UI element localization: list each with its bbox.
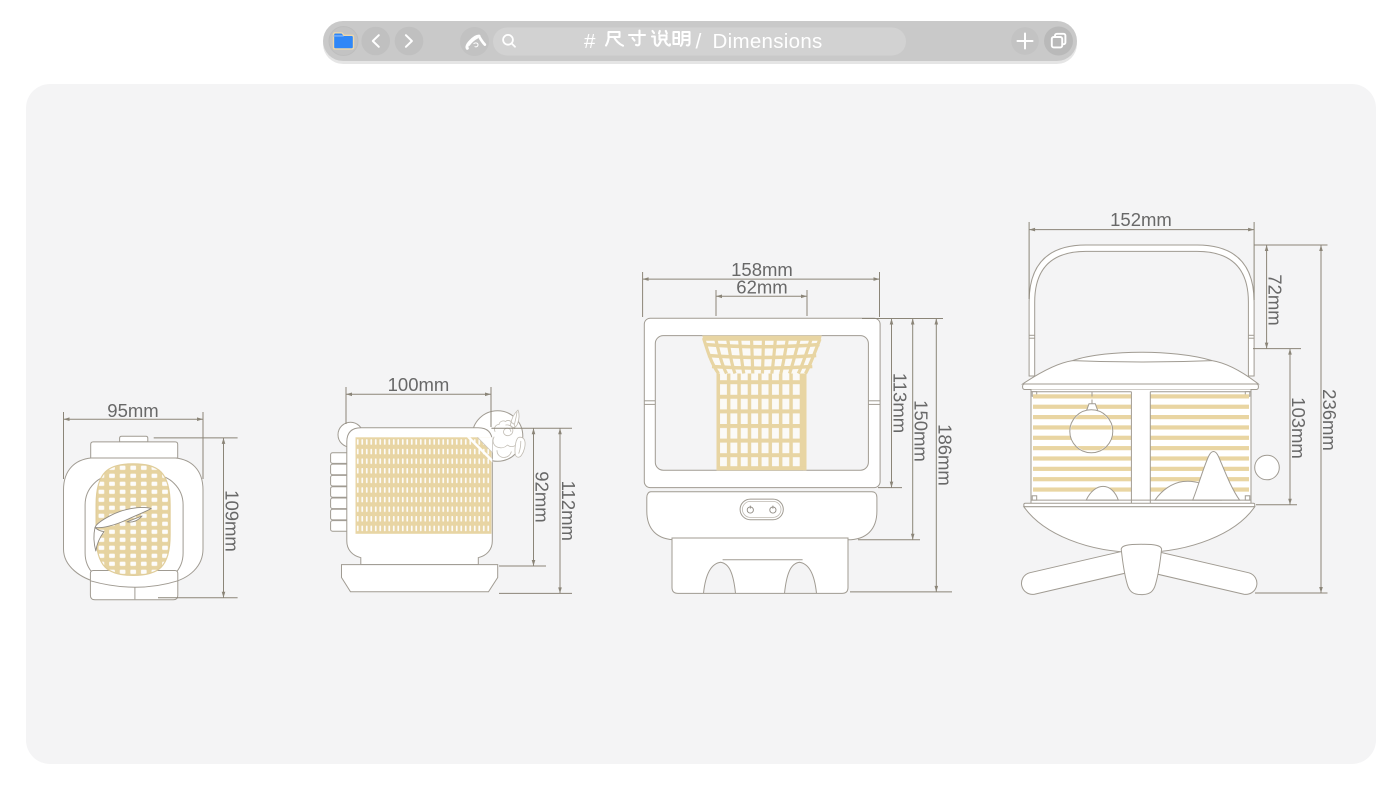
svg-text:236mm: 236mm (1319, 389, 1340, 451)
svg-text:112mm: 112mm (558, 481, 579, 541)
svg-text:62mm: 62mm (736, 277, 787, 298)
svg-text:109mm: 109mm (222, 490, 243, 552)
svg-text:186mm: 186mm (934, 424, 955, 486)
svg-text:150mm: 150mm (911, 400, 932, 462)
svg-text:113mm: 113mm (890, 373, 911, 433)
svg-text:/: / (696, 31, 702, 54)
svg-text:95mm: 95mm (107, 400, 158, 421)
svg-text:72mm: 72mm (1265, 274, 1286, 325)
svg-text:Dimensions: Dimensions (713, 30, 823, 53)
svg-text:152mm: 152mm (1110, 209, 1172, 230)
svg-text:100mm: 100mm (388, 374, 450, 395)
svg-text:103mm: 103mm (1288, 397, 1309, 459)
svg-text:#: # (584, 30, 596, 53)
svg-text:92mm: 92mm (532, 471, 553, 522)
